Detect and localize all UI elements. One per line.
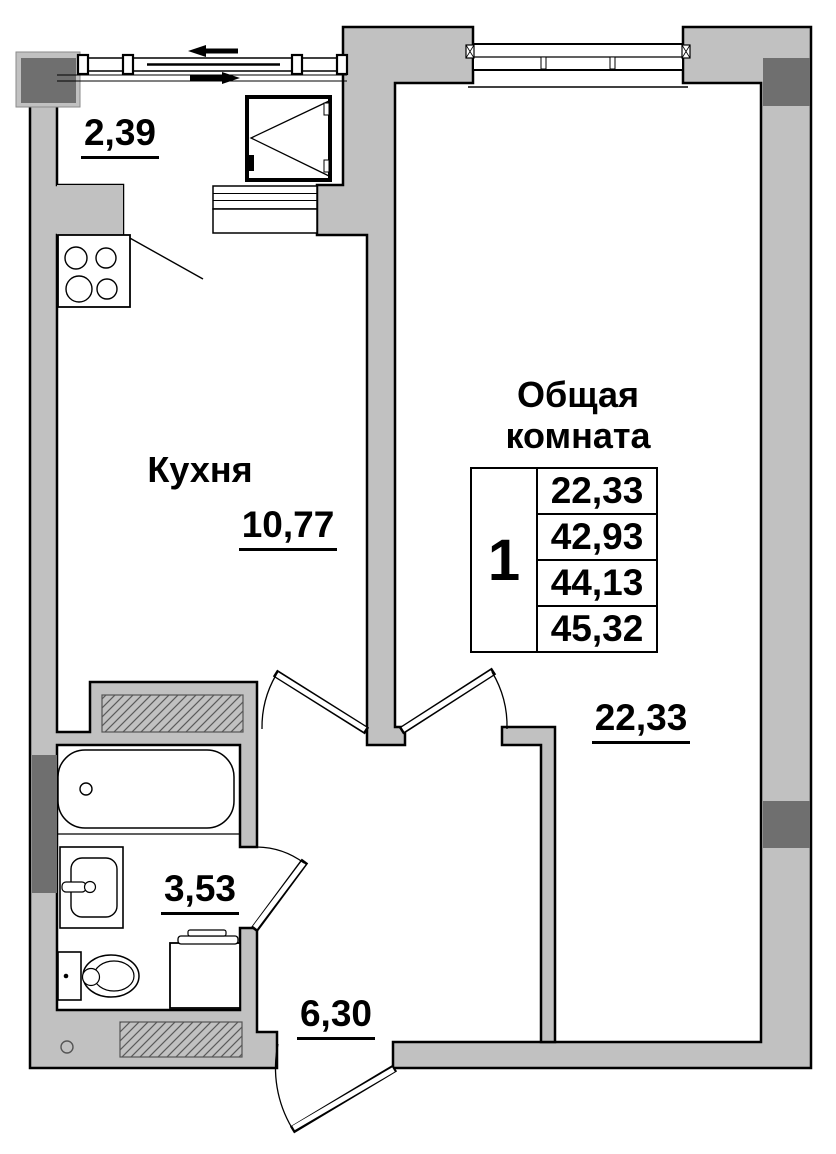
- living-room-name-label: Общая комната: [462, 374, 694, 457]
- vent-shaft-bottom: [120, 1022, 242, 1057]
- balcony-glazing: [57, 45, 347, 84]
- slide-arrow-left: [188, 45, 238, 57]
- balcony-door-swing: [128, 237, 203, 279]
- kitchen-area-label: 10,77: [233, 504, 343, 551]
- stamp-row-total-area: 44,13: [538, 559, 656, 605]
- stamp-row-usable-area: 42,93: [538, 513, 656, 559]
- kitchen-name-label: Кухня: [130, 449, 270, 490]
- apartment-stamp-table: 1 22,33 42,93 44,13 45,32: [470, 467, 658, 653]
- balcony-area-label: 2,39: [70, 112, 170, 159]
- living-room-name-line2: комната: [462, 415, 694, 456]
- right-wall-column-mid: [763, 801, 810, 848]
- kitchen-door: [262, 673, 367, 731]
- walls: [30, 27, 811, 1068]
- entrance-door: [275, 1044, 395, 1130]
- toilet: [58, 952, 139, 1000]
- floor-plan: 2,39 Кухня 10,77 Общая комната 1 22,33 4…: [0, 0, 836, 1154]
- wall-hallway-living: [502, 727, 555, 1042]
- vent-shaft-bathroom: [102, 695, 243, 732]
- right-wall-column-top: [763, 58, 810, 106]
- floor-plan-drawing: [0, 0, 836, 1154]
- stamp-row-living-area: 22,33: [538, 469, 656, 513]
- balcony-casement-window: [247, 97, 330, 180]
- kitchen-balcony-window: [213, 186, 317, 233]
- bathroom-door: [254, 847, 305, 930]
- bathtub: [57, 750, 240, 834]
- stove: [58, 235, 130, 307]
- stamp-rooms-count: 1: [472, 469, 538, 651]
- living-room-window: [466, 44, 690, 87]
- living-room-area-label: 22,33: [585, 697, 697, 744]
- wall-balcony-left-seg: [57, 185, 123, 235]
- sink: [60, 847, 123, 928]
- stamp-areas-column: 22,33 42,93 44,13 45,32: [538, 469, 656, 651]
- wall-center-divider: [317, 27, 473, 745]
- hallway-area-label: 6,30: [288, 993, 384, 1040]
- slide-arrow-right: [190, 72, 240, 84]
- bathroom-area-label: 3,53: [152, 868, 248, 915]
- living-room-name-line1: Общая: [462, 374, 694, 415]
- living-room-door: [401, 671, 507, 731]
- stamp-row-overall-area: 45,32: [538, 605, 656, 651]
- left-wall-column: [32, 755, 57, 893]
- washing-machine: [170, 930, 240, 1008]
